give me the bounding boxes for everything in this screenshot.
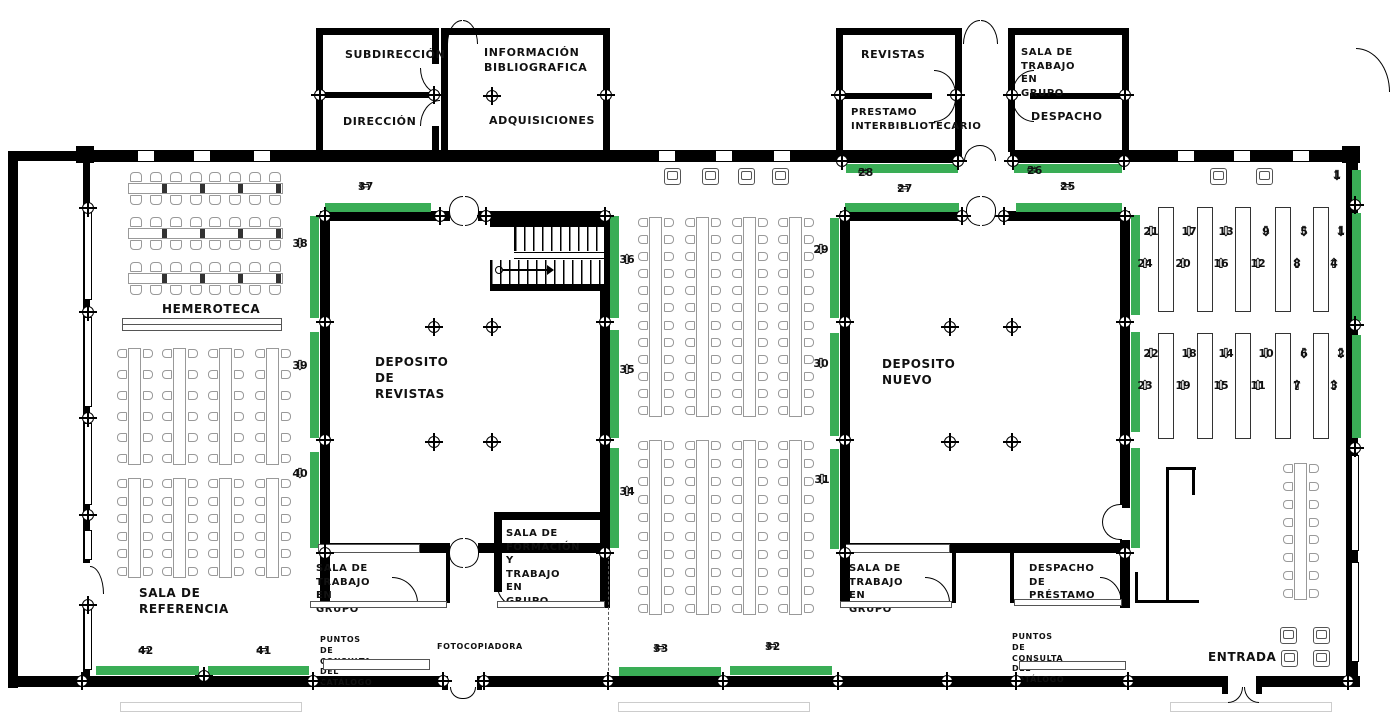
stairs-bottom-bar [490, 284, 604, 291]
reading-table-column [162, 478, 198, 578]
chair [638, 338, 648, 347]
chair [685, 303, 695, 312]
chair [1283, 464, 1293, 473]
chair [638, 269, 648, 278]
door-arc [465, 538, 479, 568]
column-marker [1007, 155, 1019, 167]
chair [664, 338, 674, 347]
shelf-number: 33 [653, 643, 668, 654]
window [84, 530, 92, 560]
chair [685, 338, 695, 347]
chair [804, 550, 814, 559]
column-marker [1119, 210, 1131, 222]
shelf-number: 11 [1250, 380, 1265, 391]
chair [685, 513, 695, 522]
chair [143, 370, 153, 379]
chair [804, 586, 814, 595]
chair [638, 406, 648, 415]
chair [664, 372, 674, 381]
chair [778, 550, 788, 559]
chair [804, 389, 814, 398]
chair [732, 459, 742, 468]
column-marker [480, 210, 492, 222]
chair [188, 532, 198, 541]
chair [1283, 571, 1293, 580]
chair [732, 406, 742, 415]
chair [638, 235, 648, 244]
table-surface [649, 440, 662, 615]
arrow-down-icon: ⇩ [815, 358, 827, 371]
window [1351, 562, 1359, 662]
chair [685, 550, 695, 559]
chair [269, 195, 281, 205]
column-marker [82, 599, 94, 611]
chair [804, 269, 814, 278]
chair [249, 217, 261, 227]
shelf-strip [310, 452, 319, 548]
chair [130, 172, 142, 182]
double-sided-shelf [1313, 207, 1329, 312]
chair [758, 321, 768, 330]
chair [711, 338, 721, 347]
chair [758, 252, 768, 261]
exterior-outline [618, 702, 810, 712]
chair [685, 269, 695, 278]
chair [1309, 553, 1319, 562]
chair [804, 406, 814, 415]
chair [1283, 482, 1293, 491]
chair [234, 349, 244, 358]
wall-segment [1000, 211, 1122, 221]
table-surface [128, 273, 283, 284]
column-marker [602, 675, 614, 687]
chair [162, 497, 172, 506]
chair [234, 433, 244, 442]
chair [1283, 500, 1293, 509]
door-arc [925, 577, 950, 603]
wall-segment [316, 92, 432, 98]
wall-segment [838, 150, 962, 163]
chair [664, 550, 674, 559]
chair [150, 240, 162, 250]
door-arc [392, 577, 418, 603]
chair [664, 303, 674, 312]
chair [117, 567, 127, 576]
chair [1309, 482, 1319, 491]
chair [711, 550, 721, 559]
chair [685, 252, 695, 261]
chair [711, 406, 721, 415]
chair [143, 391, 153, 400]
chair [685, 495, 695, 504]
chair [804, 459, 814, 468]
column-marker [600, 89, 612, 101]
shelf-number: 34 [619, 486, 634, 497]
column-marker [434, 210, 446, 222]
chair [638, 355, 648, 364]
chair [249, 195, 261, 205]
window [84, 423, 92, 505]
window [1177, 150, 1195, 162]
wall-segment [18, 151, 80, 161]
chair [188, 454, 198, 463]
chair [664, 477, 674, 486]
chair [1309, 589, 1319, 598]
chair [249, 285, 261, 295]
column-marker [437, 675, 449, 687]
chair [255, 514, 265, 523]
chair [778, 604, 788, 613]
shelf-number: 4 [1330, 258, 1338, 269]
chair [638, 495, 648, 504]
wall-segment [8, 151, 18, 688]
chair [638, 218, 648, 227]
chair [758, 235, 768, 244]
door-arc [982, 196, 996, 226]
chair [685, 321, 695, 330]
shelf-number: 3 [1330, 380, 1338, 391]
chair [638, 389, 648, 398]
chair [711, 218, 721, 227]
armchair [1313, 650, 1330, 667]
chair [208, 532, 218, 541]
window [658, 150, 676, 162]
chair [804, 513, 814, 522]
column-marker [839, 210, 851, 222]
reading-table-column [117, 348, 153, 465]
door-gap [1228, 676, 1256, 687]
reading-table-column [1283, 463, 1319, 600]
chair [190, 240, 202, 250]
shelf-strip [730, 666, 832, 675]
chair [711, 321, 721, 330]
area-label-deposito-nuevo: DEPOSITO NUEVO [882, 356, 955, 388]
column-marker [1010, 675, 1022, 687]
chair [711, 532, 721, 541]
chair [208, 349, 218, 358]
column-marker [319, 434, 331, 446]
chair [758, 303, 768, 312]
column-marker [950, 89, 962, 101]
reading-table-column [732, 440, 768, 615]
chair [190, 172, 202, 182]
column-marker [428, 436, 440, 448]
chair [732, 550, 742, 559]
table-surface [266, 478, 279, 578]
chair [804, 218, 814, 227]
chair [732, 338, 742, 347]
chair [732, 568, 742, 577]
chair [249, 240, 261, 250]
chair [281, 497, 291, 506]
table-surface [173, 348, 186, 465]
arrow-down-icon: ⇩ [294, 360, 306, 373]
chair [732, 235, 742, 244]
shelf-number: 8 [1293, 258, 1301, 269]
shelf-number: 24 [1137, 258, 1152, 269]
chair [150, 172, 162, 182]
chair [188, 514, 198, 523]
door-arc [1102, 504, 1122, 540]
chair [664, 568, 674, 577]
chair [804, 338, 814, 347]
column-marker [1119, 547, 1131, 559]
wall-segment [836, 28, 962, 35]
chair [638, 459, 648, 468]
chair [170, 262, 182, 272]
chair [117, 433, 127, 442]
chair [281, 349, 291, 358]
chair [208, 454, 218, 463]
table-surface [649, 217, 662, 417]
column-marker [952, 155, 964, 167]
column-marker [319, 316, 331, 328]
chair [234, 391, 244, 400]
chair [638, 532, 648, 541]
wall-segment [441, 150, 610, 162]
column-marker [839, 316, 851, 328]
area-label-fotocopiadora: FOTOCOPIADORA [437, 642, 523, 653]
chair [711, 252, 721, 261]
chair [778, 513, 788, 522]
area-label-adquisiciones: ADQUISICIONES [489, 114, 595, 129]
wall-segment [1135, 600, 1199, 603]
chair [711, 513, 721, 522]
area-label-deposito-revistas: DEPOSITO DE REVISTAS [375, 354, 448, 403]
chair [208, 412, 218, 421]
chair [664, 355, 674, 364]
chair [685, 372, 695, 381]
chair [638, 550, 648, 559]
table-surface [173, 478, 186, 578]
arrow-down-icon: ⇩ [1298, 226, 1310, 239]
stairs-landing [514, 252, 604, 259]
arrow-down-icon: ⇩ [294, 468, 306, 481]
chair [281, 549, 291, 558]
chair [281, 514, 291, 523]
chair [269, 240, 281, 250]
chair [638, 372, 648, 381]
chair [685, 441, 695, 450]
chair [638, 568, 648, 577]
column-marker [1119, 434, 1131, 446]
wall-segment [1135, 572, 1138, 603]
chair [281, 532, 291, 541]
chair [758, 568, 768, 577]
double-sided-shelf [1158, 333, 1174, 439]
table-surface [743, 217, 756, 417]
table-surface [696, 440, 709, 615]
chair [1283, 553, 1293, 562]
door-arc [964, 145, 996, 161]
column-marker [1119, 89, 1131, 101]
column-marker [428, 321, 440, 333]
chair [143, 412, 153, 421]
chair [778, 495, 788, 504]
wall-segment [316, 28, 439, 35]
column-marker [599, 547, 611, 559]
chair [778, 477, 788, 486]
column-marker [832, 675, 844, 687]
wall-segment [840, 211, 850, 553]
chair [208, 497, 218, 506]
table-surface [128, 348, 141, 465]
chair [1309, 464, 1319, 473]
shelf-strip [610, 448, 619, 548]
chair [234, 412, 244, 421]
chair [804, 441, 814, 450]
window [1233, 150, 1251, 162]
column-marker [599, 210, 611, 222]
shelf-number: 25 [1060, 181, 1075, 192]
chair [209, 285, 221, 295]
armchair [772, 168, 789, 185]
chair [190, 217, 202, 227]
column-marker [834, 89, 846, 101]
chair [778, 389, 788, 398]
chair [638, 321, 648, 330]
chair [234, 454, 244, 463]
chair [150, 262, 162, 272]
table-surface [789, 440, 802, 615]
chair [732, 321, 742, 330]
chair [711, 269, 721, 278]
chair [778, 338, 788, 347]
shelf-number: 42 [138, 645, 153, 656]
chair [758, 406, 768, 415]
table-surface [128, 183, 283, 194]
chair [162, 514, 172, 523]
chair [711, 495, 721, 504]
chair [778, 568, 788, 577]
window [715, 150, 733, 162]
chair [664, 269, 674, 278]
chair [1309, 518, 1319, 527]
armchair [1280, 627, 1297, 644]
wall-segment [494, 512, 502, 592]
armchair [738, 168, 755, 185]
chair [732, 252, 742, 261]
chair [117, 514, 127, 523]
chair [190, 262, 202, 272]
shelf-strip [310, 216, 319, 318]
chair [1309, 500, 1319, 509]
chair [234, 370, 244, 379]
shelf-number: 12 [1250, 258, 1265, 269]
consultation-counter [497, 601, 605, 608]
armchair [702, 168, 719, 185]
chair [778, 406, 788, 415]
shelf-strip [325, 203, 431, 212]
column-marker [82, 412, 94, 424]
door-arc [963, 20, 980, 44]
chair [234, 549, 244, 558]
chair [685, 355, 695, 364]
chair [711, 441, 721, 450]
arrow-down-icon: ⇩ [816, 474, 828, 487]
area-label-despacho: DESPACHO [1031, 110, 1103, 125]
column-marker [319, 547, 331, 559]
column-marker [1349, 199, 1361, 211]
stairs [490, 221, 604, 291]
chair [804, 321, 814, 330]
chair [732, 286, 742, 295]
chair [1309, 535, 1319, 544]
chair [664, 286, 674, 295]
chair [711, 355, 721, 364]
chair [269, 172, 281, 182]
chair [130, 195, 142, 205]
chair [162, 370, 172, 379]
chair [255, 433, 265, 442]
chair [804, 252, 814, 261]
chair [150, 285, 162, 295]
chair [758, 532, 768, 541]
chair [255, 497, 265, 506]
chair [638, 252, 648, 261]
chair [234, 532, 244, 541]
shelf-strip [830, 333, 839, 436]
wall-segment [478, 211, 602, 221]
chair [208, 370, 218, 379]
chair [804, 372, 814, 381]
arrow-down-icon: ⇩ [1335, 226, 1347, 239]
shelf-strip [1016, 203, 1122, 212]
column-marker [1119, 316, 1131, 328]
area-label-hemeroteca: HEMEROTECA [162, 301, 260, 317]
arrow-down-icon: ⇩ [1298, 348, 1310, 361]
column-marker [839, 434, 851, 446]
chair [162, 433, 172, 442]
reading-table-column [732, 217, 768, 417]
chair [117, 549, 127, 558]
double-sided-shelf [1275, 207, 1291, 312]
chair [711, 568, 721, 577]
chair [664, 586, 674, 595]
chair [804, 477, 814, 486]
armchair [1313, 627, 1330, 644]
chair [778, 372, 788, 381]
chair [804, 532, 814, 541]
reading-table-column [208, 348, 244, 465]
reading-table-column [162, 348, 198, 465]
chair [1283, 518, 1293, 527]
chair [150, 217, 162, 227]
double-sided-shelf [1197, 207, 1213, 312]
chair [255, 370, 265, 379]
stairs-direction-arrowhead [547, 265, 554, 275]
chair [778, 218, 788, 227]
table-surface [743, 440, 756, 615]
wall-segment [1166, 467, 1169, 603]
chair [143, 479, 153, 488]
reading-table-column [778, 440, 814, 615]
shelf-number: 7 [1293, 380, 1301, 391]
arrow-down-icon: ⇩ [815, 244, 827, 257]
door-gap [448, 676, 477, 687]
chair [255, 412, 265, 421]
column-marker [717, 675, 729, 687]
chair [249, 262, 261, 272]
chair [229, 217, 241, 227]
shelf-number: 37 [358, 181, 373, 192]
chair [143, 532, 153, 541]
door-arc [465, 196, 479, 226]
area-label-informacion-bibliografica: INFORMACIÓN BIBLIOGRAFICA [484, 46, 587, 76]
shelf-strip [1352, 335, 1361, 438]
shelf-strip [610, 330, 619, 438]
area-label-revistas: REVISTAS [861, 48, 925, 63]
